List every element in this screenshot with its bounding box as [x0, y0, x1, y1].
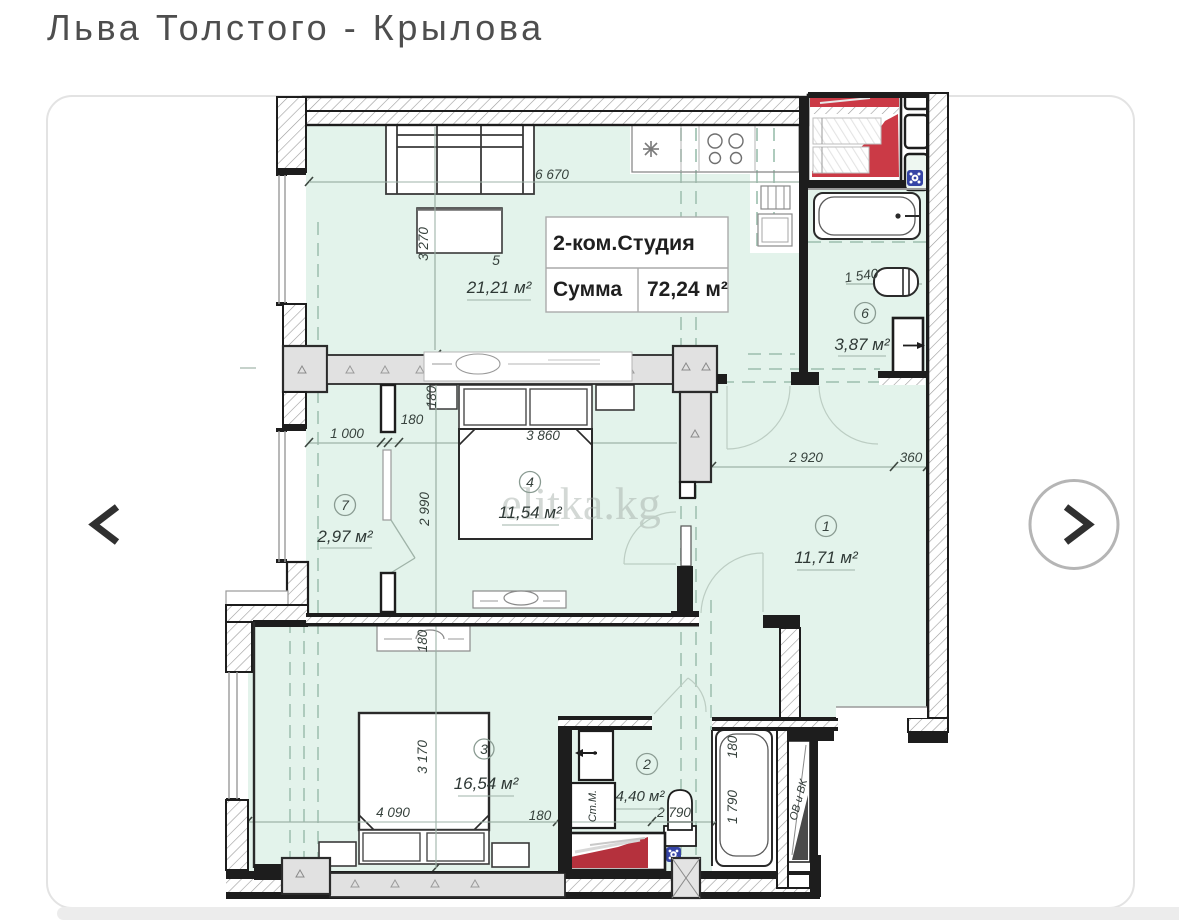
svg-text:72,24 м²: 72,24 м² [647, 278, 728, 301]
svg-text:11,71 м²: 11,71 м² [794, 548, 859, 567]
svg-text:3 270: 3 270 [416, 227, 431, 261]
svg-text:6: 6 [861, 305, 869, 321]
svg-text:2,97 м²: 2,97 м² [316, 527, 373, 546]
svg-text:4,40 м²: 4,40 м² [616, 788, 666, 805]
svg-text:2: 2 [642, 756, 651, 772]
svg-text:21,21 м²: 21,21 м² [466, 278, 533, 297]
svg-text:6 670: 6 670 [535, 167, 569, 182]
svg-text:1 000: 1 000 [330, 426, 364, 441]
svg-text:5: 5 [492, 252, 500, 268]
svg-text:180: 180 [529, 808, 552, 823]
svg-text:1: 1 [822, 518, 830, 534]
svg-text:360: 360 [900, 450, 923, 465]
svg-text:3,87 м²: 3,87 м² [834, 335, 890, 354]
svg-text:4: 4 [526, 474, 534, 490]
svg-text:3 170: 3 170 [415, 740, 430, 774]
svg-text:Ст.М.: Ст.М. [587, 790, 599, 822]
svg-text:7: 7 [341, 497, 350, 513]
svg-text:1 790: 1 790 [725, 790, 740, 824]
svg-text:2 920: 2 920 [788, 450, 823, 465]
svg-text:3 860: 3 860 [526, 428, 560, 443]
svg-text:180: 180 [415, 629, 430, 652]
svg-text:16,54 м²: 16,54 м² [454, 774, 520, 793]
svg-text:3: 3 [480, 741, 488, 757]
svg-text:2 790: 2 790 [656, 805, 691, 820]
svg-text:Сумма: Сумма [553, 278, 622, 301]
svg-text:180: 180 [725, 735, 740, 758]
svg-text:180: 180 [424, 385, 439, 408]
svg-text:2-ком.Студия: 2-ком.Студия [553, 231, 695, 255]
svg-text:11,54 м²: 11,54 м² [498, 503, 563, 522]
svg-text:2 990: 2 990 [417, 492, 432, 527]
svg-text:4 090: 4 090 [376, 805, 410, 820]
svg-text:180: 180 [401, 412, 424, 427]
